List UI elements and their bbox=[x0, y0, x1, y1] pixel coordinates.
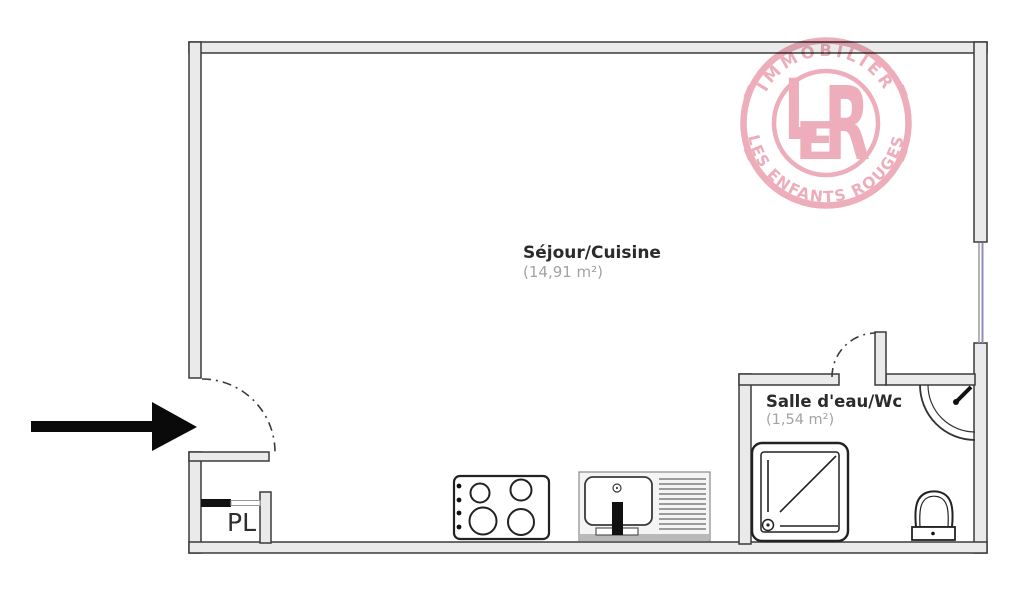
agency-logo: IMMOBILIER LES ENFANTS ROUGES L R E bbox=[0, 0, 1034, 610]
floorplan-page: Séjour/Cuisine (14,91 m²) Salle d'eau/Wc… bbox=[0, 0, 1034, 610]
logo-monogram-e: E bbox=[795, 112, 835, 172]
